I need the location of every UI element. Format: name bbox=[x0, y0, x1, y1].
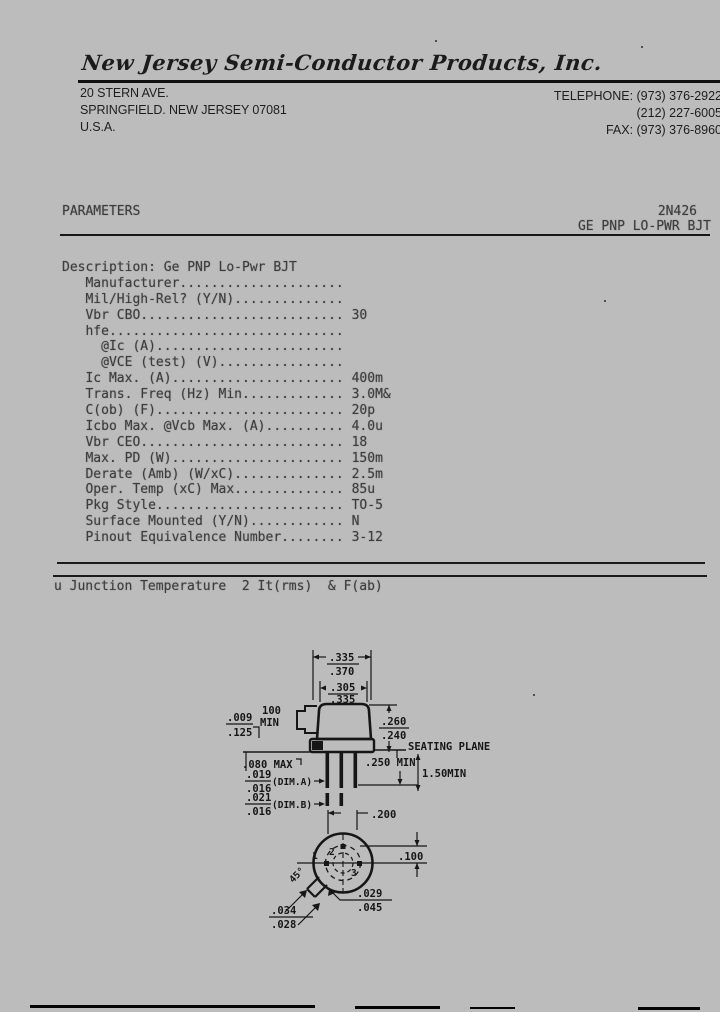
param-line: Surface Mounted (Y/N)............ N bbox=[62, 514, 391, 530]
lead-circle-label: .200 bbox=[371, 809, 396, 821]
address-line-3: U.S.A. bbox=[80, 119, 287, 136]
param-line: Derate (Amb) (W/xC).............. 2.5m bbox=[62, 467, 391, 483]
tab-width-max: .029 bbox=[357, 888, 382, 900]
to5-package-drawing: 100 MIN .335 .370 .305 .335 .009 .125 .2… bbox=[225, 643, 500, 940]
cap-od-max: .335 bbox=[329, 652, 354, 664]
seating-plane-label: SEATING PLANE bbox=[408, 741, 490, 753]
address-line-1: 20 STERN AVE. bbox=[80, 85, 287, 102]
tab-length-min: MIN bbox=[260, 717, 279, 729]
tab-angle-label: 45° bbox=[287, 865, 307, 885]
cap-top-min: .335 bbox=[330, 694, 355, 706]
param-line: Description: Ge PNP Lo-Pwr BJT bbox=[62, 260, 391, 276]
pin-1-number: 1 bbox=[312, 851, 318, 862]
scan-speck bbox=[533, 694, 535, 696]
bottom-view: .200 1 2 3 .100 45° .029 .045 .034 bbox=[269, 809, 427, 931]
part-number: 2N426 bbox=[658, 204, 697, 219]
scan-edge-bar bbox=[30, 1005, 315, 1008]
company-logo-script: New Jersey Semi-Conductor Products, Inc. bbox=[81, 50, 644, 75]
param-line: Ic Max. (A)...................... 400m bbox=[62, 371, 391, 387]
tab-length-value: 100 bbox=[262, 705, 281, 717]
title-rule bbox=[60, 234, 710, 236]
scan-edge-bar bbox=[470, 1007, 515, 1009]
telephone-line-2: (212) 227-6005 bbox=[554, 105, 720, 122]
height-min: .240 bbox=[381, 730, 406, 742]
flange-weld-blob bbox=[312, 741, 323, 750]
scan-speck bbox=[435, 40, 437, 42]
param-line: Pkg Style........................ TO-5 bbox=[62, 498, 391, 514]
scan-speck bbox=[641, 46, 643, 48]
lead-end-b bbox=[340, 793, 344, 806]
tab-end bbox=[307, 889, 315, 897]
scan-edge-bar bbox=[638, 1007, 700, 1010]
arrowhead bbox=[415, 863, 420, 869]
param-line: C(ob) (F)........................ 20p bbox=[62, 403, 391, 419]
arrowhead bbox=[361, 686, 367, 691]
lead-length-label: 1.50MIN bbox=[422, 768, 466, 780]
arrowhead bbox=[387, 746, 392, 752]
title-row: PARAMETERS 2N426 bbox=[62, 204, 697, 219]
can-cap-outline bbox=[317, 704, 371, 739]
param-line: Icbo Max. @Vcb Max. (A).......... 4.0u bbox=[62, 419, 391, 435]
side-view: 100 MIN .335 .370 .305 .335 .009 .125 .2… bbox=[226, 650, 490, 818]
arrowhead bbox=[416, 754, 421, 760]
param-line: Vbr CBO.......................... 30 bbox=[62, 308, 391, 324]
lead-offset-label: .100 bbox=[398, 851, 423, 863]
leader-line bbox=[253, 727, 259, 738]
dim-a-label: (DIM.A) bbox=[272, 777, 312, 788]
lead-straight-label: .250 MIN bbox=[365, 757, 416, 769]
param-line: Pinout Equivalence Number........ 3-12 bbox=[62, 530, 391, 546]
lead-end-a bbox=[326, 793, 330, 806]
lead-1 bbox=[326, 752, 330, 788]
arrowhead bbox=[387, 705, 392, 711]
dim-b-min: .016 bbox=[246, 806, 271, 818]
flange-dim-top: .009 bbox=[227, 712, 252, 724]
arrowhead bbox=[415, 840, 420, 846]
scan-edge-bar bbox=[355, 1006, 440, 1009]
part-subtitle: GE PNP LO-PWR BJT bbox=[62, 219, 711, 234]
pin-2-mark bbox=[341, 844, 346, 849]
arrowhead bbox=[416, 785, 421, 791]
param-line: @VCE (test) (V)................ bbox=[62, 355, 391, 371]
cap-top-max: .305 bbox=[330, 682, 355, 694]
pin-3-number: 3 bbox=[351, 868, 357, 879]
scan-speck bbox=[604, 300, 606, 302]
index-tab-side bbox=[297, 706, 317, 733]
param-line: Oper. Temp (xC) Max.............. 85u bbox=[62, 482, 391, 498]
param-line: Manufacturer..................... bbox=[62, 276, 391, 292]
tab-len-min: .028 bbox=[271, 919, 296, 931]
company-address: 20 STERN AVE. SPRINGFIELD. NEW JERSEY 07… bbox=[80, 85, 287, 135]
tab-edge bbox=[307, 877, 319, 889]
flange-dim-bottom: .125 bbox=[227, 727, 252, 739]
param-line: Max. PD (W)...................... 150m bbox=[62, 451, 391, 467]
lead-3 bbox=[354, 752, 358, 788]
arrowhead bbox=[398, 779, 403, 785]
arrowhead bbox=[365, 655, 371, 660]
scanned-datasheet-page: { "header": { "company": "New Jersey Sem… bbox=[0, 0, 720, 1012]
footnote-rule-lower bbox=[53, 575, 707, 577]
arrowhead bbox=[313, 655, 319, 660]
address-line-2: SPRINGFIELD. NEW JERSEY 07081 bbox=[80, 102, 287, 119]
dim-b-label: (DIM.B) bbox=[272, 800, 312, 811]
company-contact: TELEPHONE: (973) 376-2922 (212) 227-6005… bbox=[554, 88, 720, 138]
letterhead-rule bbox=[78, 80, 720, 83]
dim-a-max: .019 bbox=[246, 769, 271, 781]
tab-edge bbox=[315, 885, 327, 897]
fax-line: FAX: (973) 376-8960 bbox=[554, 122, 720, 139]
param-line: Mil/High-Rel? (Y/N).............. bbox=[62, 292, 391, 308]
footnote-text: u Junction Temperature 2 It(rms) & F(ab) bbox=[54, 579, 383, 594]
footnote-rule-upper bbox=[57, 562, 705, 564]
tab-len-max: .034 bbox=[271, 905, 296, 917]
arrowhead bbox=[328, 811, 334, 816]
param-line: hfe.............................. bbox=[62, 324, 391, 340]
arrowhead bbox=[319, 802, 325, 807]
param-line: @Ic (A)........................ bbox=[62, 339, 391, 355]
pin-2-number: 2 bbox=[329, 847, 335, 858]
height-max: .260 bbox=[381, 716, 406, 728]
cap-od-min: .370 bbox=[329, 666, 354, 678]
pin-1-mark bbox=[324, 861, 329, 866]
arrowhead bbox=[320, 686, 326, 691]
telephone-line: TELEPHONE: (973) 376-2922 bbox=[554, 88, 720, 105]
section-title: PARAMETERS bbox=[62, 204, 140, 219]
param-line: Trans. Freq (Hz) Min............. 3.0M& bbox=[62, 387, 391, 403]
param-line: Vbr CEO.......................... 18 bbox=[62, 435, 391, 451]
parameter-list: Description: Ge PNP Lo-Pwr BJT Manufactu… bbox=[62, 260, 391, 546]
pin-3-mark bbox=[357, 861, 362, 866]
lead-2 bbox=[340, 752, 344, 788]
bracket bbox=[296, 759, 301, 765]
tab-width-min: .045 bbox=[357, 902, 382, 914]
dim-b-max: .021 bbox=[246, 792, 271, 804]
arrowhead bbox=[319, 779, 325, 784]
